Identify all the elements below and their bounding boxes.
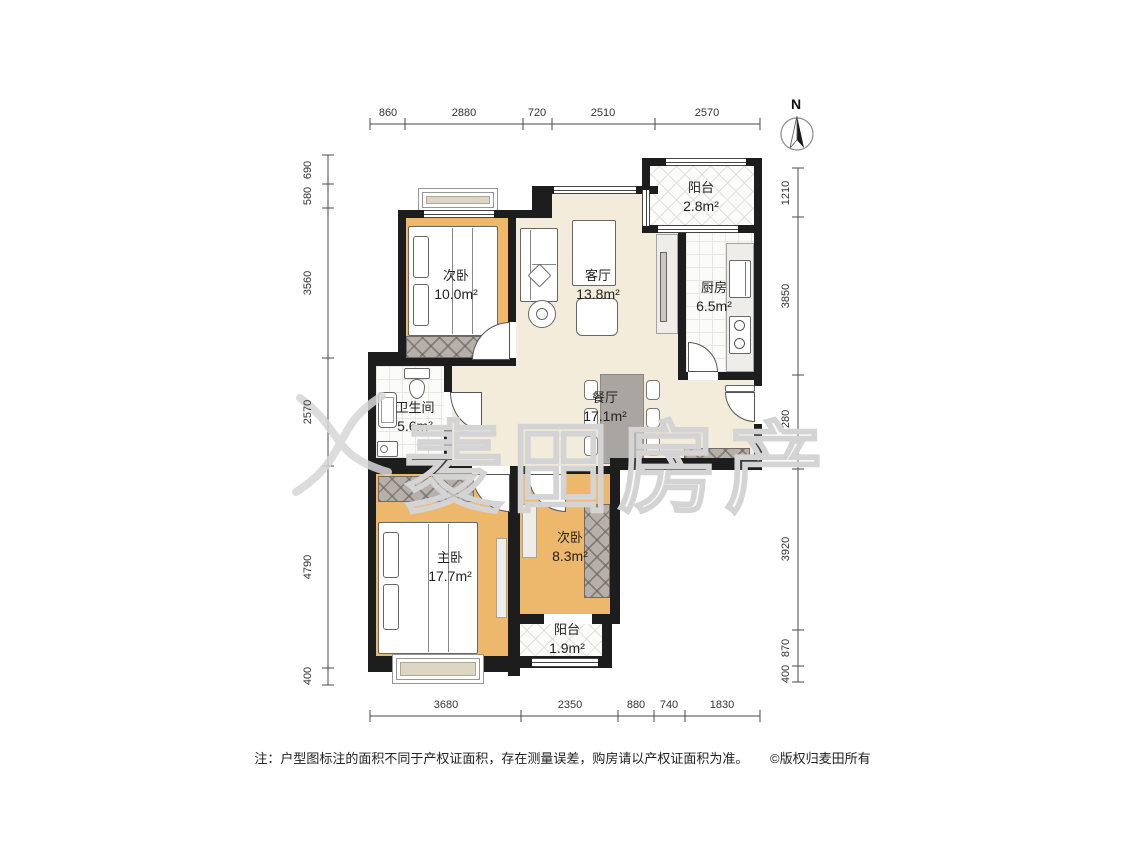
blanket-line: [428, 524, 429, 652]
room-name: 厨房: [669, 278, 759, 297]
pillow: [383, 532, 399, 578]
room-area: 13.8m²: [553, 285, 643, 304]
room-label-master: 主卧 17.7m²: [405, 548, 495, 586]
dim-label: 1210: [780, 181, 792, 205]
wardrobe: [378, 476, 474, 502]
room-area: 1.9m²: [522, 639, 612, 658]
room-name: 阳台: [656, 178, 746, 197]
tv-cabinet-master: [496, 538, 507, 618]
north-label: N: [791, 96, 801, 112]
door-opening: [754, 386, 762, 424]
wall: [368, 466, 376, 672]
dim-label: 2510: [591, 107, 615, 119]
dim-label: 4790: [302, 555, 314, 579]
dim-label: 860: [379, 107, 397, 119]
bay-window-top: [418, 188, 498, 212]
room-label-dining: 餐厅 17.1m²: [560, 388, 650, 426]
room-name: 卫生间: [370, 398, 460, 417]
room-area: 5.6m²: [370, 417, 460, 436]
dim-label: 400: [780, 665, 792, 683]
window: [666, 158, 746, 166]
sofa-line: [532, 264, 556, 265]
room-area: 17.7m²: [405, 567, 495, 586]
door-opening: [472, 466, 510, 474]
dim-label: 880: [627, 699, 645, 711]
wall: [484, 656, 520, 672]
dim-label: 740: [660, 699, 678, 711]
dim-label: 3680: [434, 699, 458, 711]
room-name: 阳台: [522, 620, 612, 639]
wall: [610, 458, 762, 470]
window: [642, 190, 650, 226]
dim-label: 690: [302, 161, 314, 179]
dim-label: 720: [528, 107, 546, 119]
footer-note: 注：户型图标注的面积不同于产权证面积，存在测量误差，购房请以产权证面积为准。 ©…: [0, 748, 1125, 767]
room-label-balcony-bottom: 阳台 1.9m²: [522, 620, 612, 658]
room-area: 8.3m²: [525, 547, 615, 566]
room-area: 17.1m²: [560, 407, 650, 426]
sofa-line: [530, 230, 531, 300]
room-name: 次卧: [525, 528, 615, 547]
room-name: 主卧: [405, 548, 495, 567]
dim-label: 3560: [302, 271, 314, 295]
dim-label: 3850: [780, 284, 792, 308]
window: [554, 186, 636, 194]
washer-knob: [380, 445, 388, 453]
window: [658, 225, 738, 233]
dim-label: 2570: [695, 107, 719, 119]
room-area: 6.5m²: [669, 297, 759, 316]
dim-label: 580: [302, 187, 314, 205]
dim-label: 400: [302, 667, 314, 685]
burner: [734, 338, 745, 349]
disclaimer-text: 注：户型图标注的面积不同于产权证面积，存在测量误差，购房请以产权证面积为准。: [254, 751, 748, 766]
entry-door-leaf: [725, 385, 755, 392]
dim-label: 2880: [452, 107, 476, 119]
toilet-tank: [404, 368, 430, 379]
dim-label: 870: [780, 639, 792, 657]
room-label-kitchen: 厨房 6.5m²: [669, 278, 759, 316]
dim-label: 2280: [780, 410, 792, 434]
pillow: [383, 584, 399, 630]
north-compass-icon: [781, 116, 813, 150]
wall: [508, 210, 516, 322]
wall: [368, 656, 392, 672]
floorplan-page: 次卧 10.0m² 客厅 13.8m² 阳台 2.8m² 厨房 6.5m² 卫生…: [0, 0, 1125, 844]
room-area: 2.8m²: [656, 197, 746, 216]
wall: [368, 458, 452, 466]
burner: [734, 320, 745, 331]
room-area: 10.0m²: [411, 285, 501, 304]
tv: [660, 252, 667, 322]
dining-chair: [646, 436, 660, 456]
room-name: 客厅: [553, 266, 643, 285]
dim-label: 3920: [780, 537, 792, 561]
door-opening: [528, 466, 566, 474]
blanket-line: [448, 524, 449, 652]
room-label-bathroom: 卫生间 5.6m²: [370, 398, 460, 436]
door-opening: [688, 372, 718, 380]
room-label-bedroom-bottom: 次卧 8.3m²: [525, 528, 615, 566]
dim-label: 2350: [558, 699, 582, 711]
bay-window-bottom: [392, 654, 484, 684]
dim-label: 2570: [302, 400, 314, 424]
side-table-inner: [536, 308, 548, 320]
room-name: 次卧: [411, 266, 501, 285]
room-label-bedroom-top: 次卧 10.0m²: [411, 266, 501, 304]
room-label-living: 客厅 13.8m²: [553, 266, 643, 304]
copyright-text: ©版权归麦田所有: [770, 751, 871, 766]
dining-chair: [584, 436, 598, 456]
wall: [398, 210, 406, 366]
window: [532, 658, 598, 667]
dim-label: 1830: [710, 699, 734, 711]
room-name: 餐厅: [560, 388, 650, 407]
wall: [368, 352, 402, 366]
window: [424, 210, 494, 218]
room-label-balcony-top: 阳台 2.8m²: [656, 178, 746, 216]
